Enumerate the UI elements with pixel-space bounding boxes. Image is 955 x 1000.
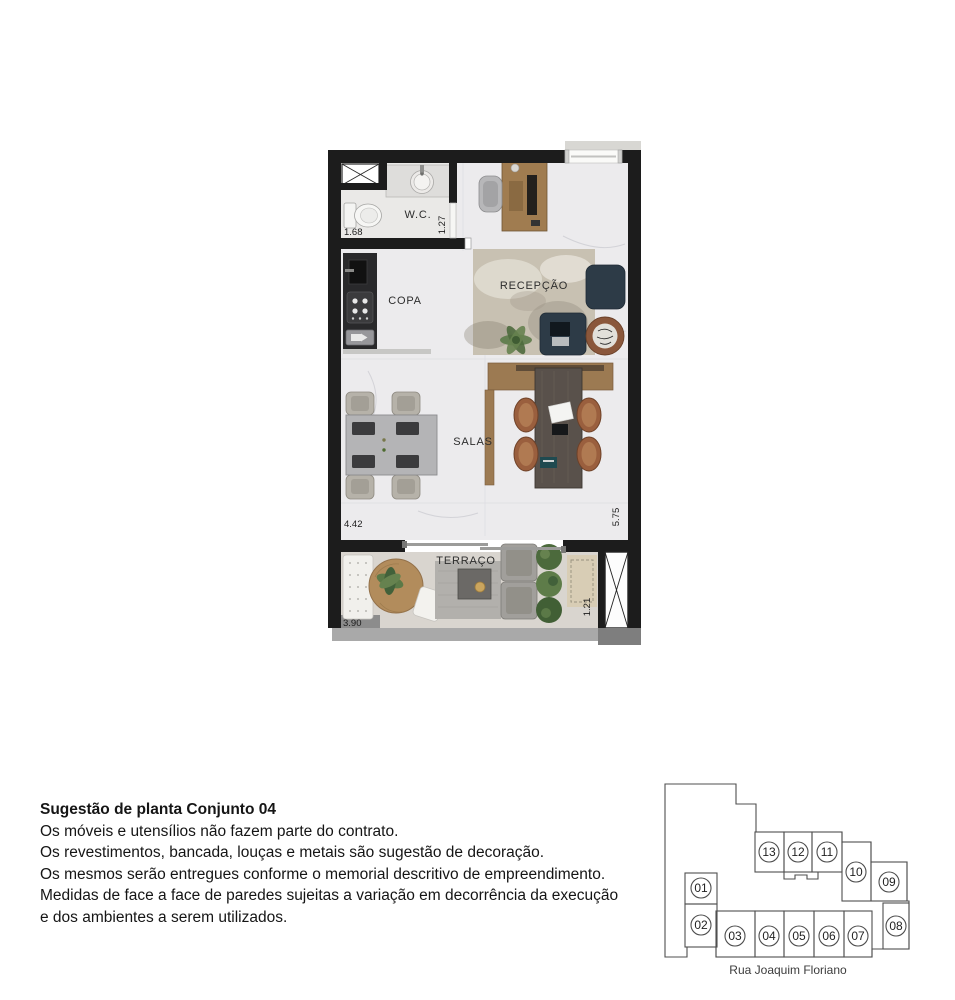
unit-01-label: 01 [694, 881, 708, 895]
unit-09-label: 09 [882, 875, 896, 889]
dim-wc-width: 1.68 [344, 227, 363, 238]
meeting-table-gray [346, 415, 437, 475]
sink-counter [386, 165, 455, 197]
cooktop [347, 292, 373, 323]
wall-cap [465, 238, 471, 249]
unit-11: 11 [812, 832, 842, 872]
note-line: Os móveis e utensílios não fazem parte d… [40, 821, 670, 843]
unit-05-label: 05 [792, 929, 806, 943]
meeting-table-dark [535, 368, 582, 488]
unit-01: 01 [685, 873, 717, 904]
shaft-hatch [605, 552, 628, 628]
core-notch [784, 872, 818, 879]
unit-04-label: 04 [762, 929, 776, 943]
unit-09: 09 [871, 862, 907, 901]
unit-08: 08 [883, 903, 909, 949]
unit-13: 13 [755, 832, 784, 872]
key-plan: 01 02 03 04 05 06 07 08 09 [659, 779, 951, 984]
floor-plan-svg: W.C. COPA RECEPÇÃO SALAS TERRAÇO 1.68 1.… [328, 141, 641, 651]
unit-07-label: 07 [851, 929, 865, 943]
unit-10-label: 10 [849, 865, 863, 879]
dim-salas-width: 4.42 [344, 519, 363, 530]
note-line: Medidas de face a face de paredes sujeit… [40, 885, 670, 907]
notes-title: Sugestão de planta Conjunto 04 [40, 799, 670, 821]
counter-edge [343, 349, 431, 354]
unit-06-label: 06 [822, 929, 836, 943]
room-label-salas: SALAS [453, 436, 492, 448]
street-label: Rua Joaquim Floriano [729, 963, 847, 977]
exterior-sliver [565, 141, 641, 150]
armchair-navy [586, 265, 625, 309]
unit-10: 10 [842, 842, 871, 901]
floor-plan: W.C. COPA RECEPÇÃO SALAS TERRAÇO 1.68 1.… [328, 141, 641, 651]
wc-door [450, 203, 456, 238]
parapet-strip-dark [598, 628, 641, 645]
unit-11-label: 11 [821, 845, 834, 859]
unit-12: 12 [784, 832, 812, 872]
unit-08-label: 08 [889, 919, 903, 933]
room-label-recepcao: RECEPÇÃO [500, 279, 568, 292]
side-stool [586, 317, 624, 355]
unit-12-label: 12 [791, 845, 805, 859]
toilet [344, 203, 382, 228]
dim-terraco-width: 3.90 [343, 618, 362, 629]
note-line: Os mesmos serão entregues conforme o mem… [40, 864, 670, 886]
window [565, 150, 622, 163]
unit-13-label: 13 [762, 845, 776, 859]
unit-02: 02 [685, 904, 717, 947]
shower-hatch [342, 164, 379, 185]
unit-03: 03 [716, 911, 755, 957]
room-label-terraco: TERRAÇO [436, 555, 495, 567]
room-label-wc: W.C. [404, 209, 431, 221]
tufted-armchair [343, 555, 373, 619]
room-label-copa: COPA [388, 295, 422, 307]
dim-salas-depth: 5.75 [611, 508, 622, 527]
note-line: Os revestimentos, bancada, louças e meta… [40, 842, 670, 864]
dim-wc-depth: 1.27 [437, 216, 448, 235]
terrace-plants [536, 544, 562, 623]
note-line: e dos ambientes a serem utilizados. [40, 907, 670, 929]
unit-03-label: 03 [728, 929, 742, 943]
dim-terraco-depth: 1.21 [582, 598, 593, 617]
unit-04-highlighted: 04 [755, 911, 784, 957]
notes-block: Sugestão de planta Conjunto 04 Os móveis… [40, 799, 670, 928]
appliance [346, 330, 374, 345]
coffee-table [458, 569, 491, 599]
parapet-strip [332, 628, 598, 641]
unit-05: 05 [784, 911, 814, 957]
unit-07: 07 [844, 911, 872, 957]
laptop-chair [540, 313, 586, 355]
reception-desk [502, 161, 547, 231]
unit-06: 06 [814, 911, 844, 957]
unit-02-label: 02 [694, 918, 708, 932]
office-chair [479, 176, 502, 212]
key-plan-svg: 01 02 03 04 05 06 07 08 09 [659, 779, 951, 984]
